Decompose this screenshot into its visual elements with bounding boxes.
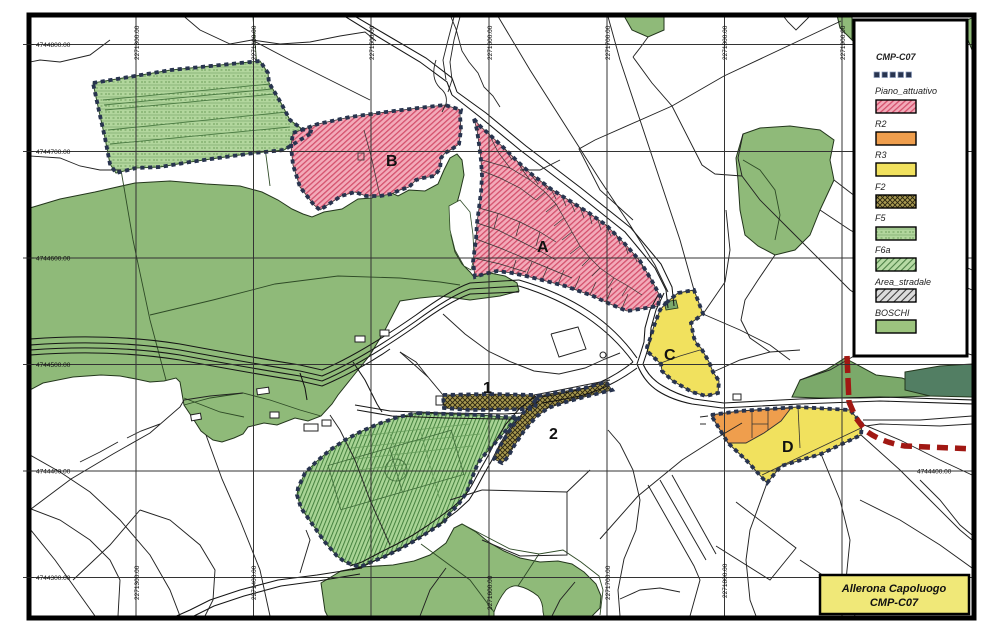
- svg-text:4744400.00: 4744400.00: [917, 469, 952, 476]
- svg-text:CMP-C07: CMP-C07: [870, 597, 919, 609]
- svg-text:F2: F2: [875, 182, 886, 192]
- svg-text:4744500.00: 4744500.00: [36, 362, 71, 369]
- svg-text:2271800.00: 2271800.00: [722, 563, 729, 598]
- svg-text:B: B: [386, 153, 398, 170]
- svg-text:F5: F5: [875, 213, 886, 223]
- svg-text:Allerona Capoluogo: Allerona Capoluogo: [841, 583, 947, 595]
- svg-text:2271300.00: 2271300.00: [134, 25, 141, 60]
- svg-text:4744400.00: 4744400.00: [36, 469, 71, 476]
- svg-text:R3: R3: [875, 150, 887, 160]
- svg-text:4744800.00: 4744800.00: [36, 42, 71, 49]
- svg-text:D: D: [782, 439, 794, 456]
- svg-text:2271700.00: 2271700.00: [605, 25, 612, 60]
- svg-text:2271800.00: 2271800.00: [722, 25, 729, 60]
- svg-text:Piano_attuativo: Piano_attuativo: [875, 86, 937, 96]
- svg-text:Area_stradale: Area_stradale: [874, 277, 931, 287]
- svg-text:2271400.00: 2271400.00: [251, 25, 258, 60]
- svg-text:2271600.00: 2271600.00: [487, 575, 494, 610]
- svg-text:2271700.00: 2271700.00: [605, 565, 612, 600]
- svg-text:4744600.00: 4744600.00: [36, 256, 71, 263]
- svg-text:2: 2: [549, 426, 558, 443]
- svg-text:4744300.00: 4744300.00: [36, 575, 71, 582]
- svg-text:2271400.00: 2271400.00: [251, 565, 258, 600]
- svg-text:F6a: F6a: [875, 245, 891, 255]
- svg-text:BOSCHI: BOSCHI: [875, 308, 910, 318]
- svg-text:2271600.00: 2271600.00: [487, 25, 494, 60]
- svg-text:2271300.00: 2271300.00: [134, 565, 141, 600]
- svg-text:R2: R2: [875, 119, 887, 129]
- svg-text:2271900.00: 2271900.00: [840, 25, 847, 60]
- svg-text:4744700.00: 4744700.00: [36, 149, 71, 156]
- svg-text:2271500.00: 2271500.00: [369, 25, 376, 60]
- svg-text:C: C: [664, 347, 676, 364]
- svg-text:CMP-C07: CMP-C07: [876, 52, 917, 62]
- svg-text:A: A: [537, 239, 549, 256]
- svg-text:1: 1: [483, 380, 492, 397]
